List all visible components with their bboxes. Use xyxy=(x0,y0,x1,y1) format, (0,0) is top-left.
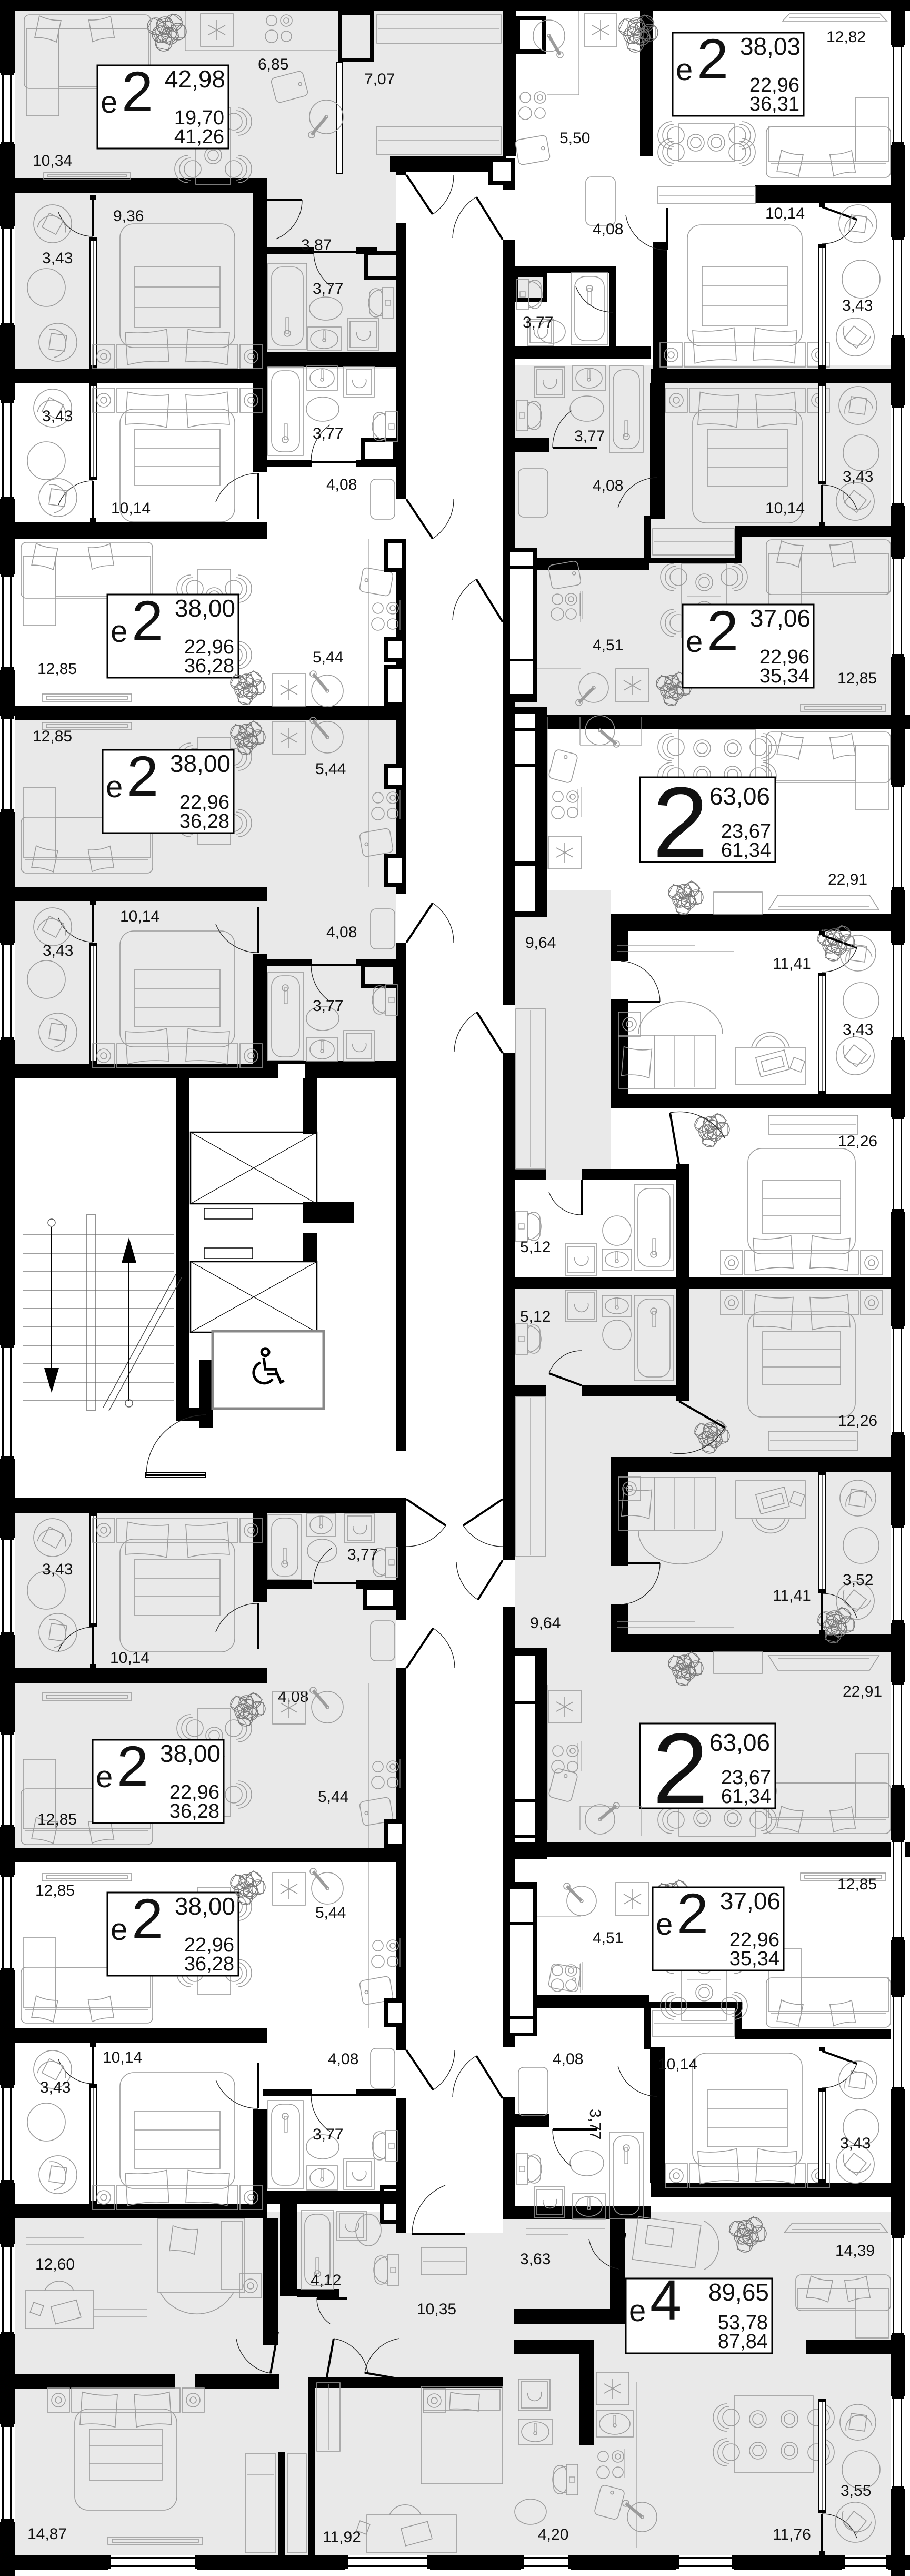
svg-text:61,34: 61,34 xyxy=(721,839,771,861)
svg-text:4,12: 4,12 xyxy=(311,2272,341,2289)
svg-text:3,77: 3,77 xyxy=(586,2109,604,2139)
svg-text:10,34: 10,34 xyxy=(33,152,72,170)
svg-text:11,92: 11,92 xyxy=(323,2529,361,2546)
svg-text:12,85: 12,85 xyxy=(37,660,77,678)
svg-text:36,28: 36,28 xyxy=(179,810,229,833)
svg-text:12,26: 12,26 xyxy=(838,1133,877,1150)
svg-text:3,77: 3,77 xyxy=(347,1546,378,1563)
svg-text:3,52: 3,52 xyxy=(843,1571,873,1589)
svg-text:4: 4 xyxy=(650,2268,682,2332)
svg-text:36,28: 36,28 xyxy=(169,1800,219,1822)
svg-text:е: е xyxy=(656,1907,673,1941)
svg-text:10,14: 10,14 xyxy=(765,205,805,222)
svg-text:12,85: 12,85 xyxy=(33,728,72,745)
svg-text:9,64: 9,64 xyxy=(525,934,556,952)
svg-text:2: 2 xyxy=(653,1713,708,1825)
svg-text:12,26: 12,26 xyxy=(838,1412,877,1430)
svg-text:5,12: 5,12 xyxy=(520,1308,551,1325)
svg-text:12,60: 12,60 xyxy=(35,2256,75,2273)
svg-text:38,03: 38,03 xyxy=(740,33,801,60)
svg-text:36,31: 36,31 xyxy=(749,93,799,115)
svg-text:2: 2 xyxy=(127,744,158,808)
svg-text:3,43: 3,43 xyxy=(43,942,73,959)
svg-text:4,08: 4,08 xyxy=(593,221,623,238)
svg-text:5,44: 5,44 xyxy=(313,649,343,666)
svg-text:е: е xyxy=(111,615,127,649)
svg-text:38,00: 38,00 xyxy=(175,1893,235,1920)
svg-text:3,43: 3,43 xyxy=(42,250,73,267)
svg-text:22,91: 22,91 xyxy=(843,1683,882,1700)
svg-text:3,43: 3,43 xyxy=(42,1561,73,1578)
svg-text:4,08: 4,08 xyxy=(593,477,623,494)
svg-text:11,41: 11,41 xyxy=(773,1587,811,1604)
svg-text:36,28: 36,28 xyxy=(184,1953,234,1975)
svg-text:2: 2 xyxy=(697,27,728,91)
svg-text:4,08: 4,08 xyxy=(326,476,357,493)
svg-text:5,50: 5,50 xyxy=(559,130,590,147)
svg-text:е: е xyxy=(629,2294,646,2328)
svg-text:11,41: 11,41 xyxy=(773,955,811,973)
svg-text:4,08: 4,08 xyxy=(553,2050,583,2068)
svg-text:12,85: 12,85 xyxy=(837,670,877,687)
svg-text:е: е xyxy=(676,53,693,87)
svg-text:3,43: 3,43 xyxy=(843,468,873,486)
svg-text:6,85: 6,85 xyxy=(258,56,288,73)
svg-text:4,51: 4,51 xyxy=(593,1929,623,1947)
svg-text:10,14: 10,14 xyxy=(110,1649,149,1667)
svg-text:38,00: 38,00 xyxy=(160,1740,221,1767)
svg-text:14,87: 14,87 xyxy=(27,2525,67,2543)
svg-text:3,77: 3,77 xyxy=(574,428,605,445)
svg-text:5,44: 5,44 xyxy=(315,1904,346,1921)
svg-text:10,14: 10,14 xyxy=(658,2056,697,2073)
svg-text:2: 2 xyxy=(707,599,738,662)
svg-text:42,98: 42,98 xyxy=(165,65,225,93)
svg-text:2: 2 xyxy=(653,767,708,878)
svg-text:е: е xyxy=(106,770,123,804)
svg-text:3,55: 3,55 xyxy=(841,2482,871,2500)
svg-text:5,44: 5,44 xyxy=(315,760,346,778)
svg-text:2: 2 xyxy=(677,1881,708,1945)
svg-text:3,63: 3,63 xyxy=(520,2251,551,2268)
svg-text:37,06: 37,06 xyxy=(720,1887,781,1915)
svg-text:61,34: 61,34 xyxy=(721,1786,771,1808)
svg-text:3,77: 3,77 xyxy=(313,425,343,442)
svg-text:9,36: 9,36 xyxy=(113,207,144,225)
svg-text:4,08: 4,08 xyxy=(328,2050,358,2068)
svg-text:4,08: 4,08 xyxy=(278,1688,308,1706)
svg-text:3,43: 3,43 xyxy=(840,2135,871,2152)
svg-text:е: е xyxy=(111,1913,127,1947)
svg-text:37,06: 37,06 xyxy=(750,605,811,632)
svg-text:22,91: 22,91 xyxy=(828,871,867,888)
svg-text:3,43: 3,43 xyxy=(42,408,73,425)
svg-text:12,85: 12,85 xyxy=(837,1876,877,1893)
svg-text:10,14: 10,14 xyxy=(103,2049,142,2066)
svg-text:2: 2 xyxy=(132,589,163,652)
svg-text:63,06: 63,06 xyxy=(709,1729,770,1756)
svg-text:5,12: 5,12 xyxy=(520,1239,551,1256)
svg-text:7,07: 7,07 xyxy=(364,71,395,88)
svg-text:2: 2 xyxy=(122,60,153,123)
svg-text:87,84: 87,84 xyxy=(718,2331,768,2353)
svg-text:е: е xyxy=(96,1760,113,1794)
svg-text:10,14: 10,14 xyxy=(111,500,151,517)
svg-text:35,34: 35,34 xyxy=(759,665,809,687)
svg-text:10,14: 10,14 xyxy=(765,500,805,517)
svg-text:е: е xyxy=(101,85,117,120)
svg-text:10,35: 10,35 xyxy=(417,2301,456,2318)
svg-text:12,85: 12,85 xyxy=(35,1882,75,1899)
svg-text:9,64: 9,64 xyxy=(530,1614,561,1632)
svg-text:12,85: 12,85 xyxy=(37,1811,77,1828)
svg-text:4,20: 4,20 xyxy=(538,2526,568,2543)
svg-text:е: е xyxy=(686,625,703,659)
svg-text:36,28: 36,28 xyxy=(184,655,234,677)
svg-text:3,77: 3,77 xyxy=(313,280,343,298)
svg-text:14,39: 14,39 xyxy=(835,2242,875,2260)
svg-text:4,08: 4,08 xyxy=(326,924,357,941)
svg-text:38,00: 38,00 xyxy=(170,750,231,777)
svg-text:3,77: 3,77 xyxy=(523,314,553,331)
svg-text:35,34: 35,34 xyxy=(729,1948,779,1970)
svg-text:2: 2 xyxy=(117,1734,148,1798)
svg-text:3,43: 3,43 xyxy=(40,2079,71,2096)
svg-text:10,14: 10,14 xyxy=(120,908,159,925)
svg-text:3,43: 3,43 xyxy=(843,1021,873,1038)
svg-text:12,82: 12,82 xyxy=(826,28,866,46)
svg-text:2: 2 xyxy=(132,1887,163,1950)
svg-text:4,51: 4,51 xyxy=(593,637,623,654)
svg-text:3,43: 3,43 xyxy=(842,297,873,314)
svg-text:3,77: 3,77 xyxy=(313,2126,343,2143)
svg-text:5,44: 5,44 xyxy=(318,1788,348,1806)
svg-text:89,65: 89,65 xyxy=(708,2278,769,2306)
svg-text:41,26: 41,26 xyxy=(174,126,224,148)
svg-text:11,76: 11,76 xyxy=(773,2526,811,2543)
svg-text:38,00: 38,00 xyxy=(175,595,235,622)
svg-text:63,06: 63,06 xyxy=(709,782,770,810)
